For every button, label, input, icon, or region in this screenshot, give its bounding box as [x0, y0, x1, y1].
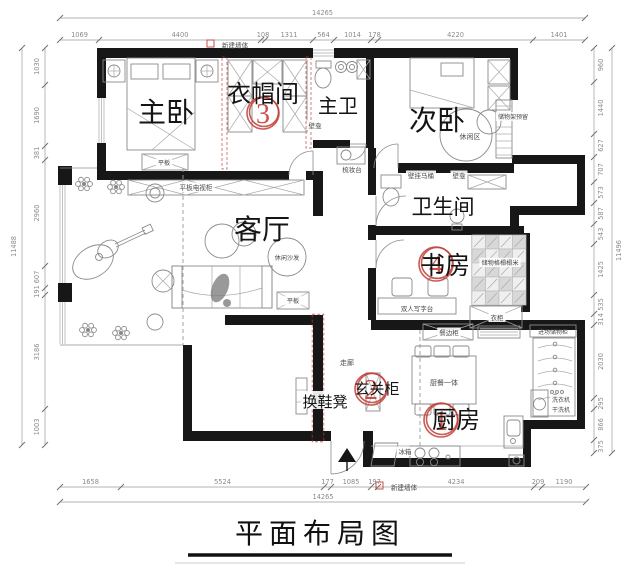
label-tatami: 储物格榻榻米: [481, 259, 518, 267]
plant: [85, 186, 90, 191]
washer-knob: [556, 391, 559, 394]
label-storage-reserved: 储物架预留: [498, 113, 528, 121]
wall-segment: [58, 166, 72, 185]
plant: [108, 185, 113, 190]
floorplan-drawing: 1426510694400108131156410141784220140116…: [0, 0, 640, 571]
toilet: [315, 68, 331, 88]
plant: [79, 186, 84, 191]
room-label-master-bath: 主卫: [318, 95, 358, 118]
plant: [80, 328, 85, 333]
label-leisure-sofa: 休闲沙发: [275, 254, 300, 262]
dim-label: 2960: [33, 205, 41, 222]
dim-label: 1030: [33, 58, 41, 75]
plant: [79, 177, 84, 182]
label-niche: 壁龛: [309, 121, 323, 130]
new-wall-partition: [222, 57, 227, 169]
dim-label: 707: [597, 163, 605, 176]
dim-label: 5524: [214, 478, 231, 486]
entry-arrow: [338, 448, 356, 462]
plant: [85, 177, 90, 182]
dim-label: 4400: [172, 31, 189, 39]
wall-segment: [58, 283, 72, 302]
wall-segment: [334, 48, 518, 58]
door-arc: [374, 144, 398, 168]
wall-segment: [374, 226, 524, 235]
plant: [83, 332, 88, 337]
dim-label: 108: [257, 31, 270, 39]
plant: [83, 323, 88, 328]
dim-label: 295: [597, 397, 605, 410]
room-label-study: 书房: [420, 252, 470, 280]
dim-label: 1440: [597, 100, 605, 117]
plant: [88, 182, 93, 187]
dim-label: 314: [597, 313, 605, 326]
dim-label: 535: [597, 298, 605, 311]
wall-segment: [368, 268, 376, 320]
label-corridor: 走廊: [340, 358, 354, 367]
bed: [410, 58, 474, 108]
wall-segment: [510, 48, 518, 100]
dim-label: 11488: [10, 236, 18, 257]
hanger-rack: [533, 338, 575, 416]
wall-toilet-tank: [381, 175, 401, 188]
dim-label: 564: [317, 31, 330, 39]
legend-new-wall: 新建墙体: [222, 41, 249, 50]
balcony-furniture: [66, 177, 164, 339]
door-arc: [376, 240, 404, 268]
dim-label: 375: [597, 440, 605, 453]
dim-label: 1085: [343, 478, 360, 486]
plant: [117, 189, 122, 194]
dim-label: 381: [33, 147, 41, 160]
pillow: [131, 64, 158, 79]
door-arc: [376, 196, 406, 226]
dim-label: 1658: [82, 478, 99, 486]
dim-label: 3186: [33, 344, 41, 361]
wall-segment: [517, 206, 582, 215]
pillow: [441, 63, 463, 76]
plant: [119, 331, 123, 335]
burner: [415, 448, 425, 458]
label-fridge: 冰箱: [399, 447, 413, 456]
toilet-tank: [316, 61, 331, 68]
room-label-cloak: 衣帽间: [227, 81, 299, 108]
wall-segment: [523, 420, 585, 429]
plant: [114, 185, 118, 189]
dim-label: 178: [368, 31, 381, 39]
washer-knob: [551, 391, 554, 394]
wall-segment: [512, 155, 585, 164]
dim-label: 1311: [281, 31, 298, 39]
wall-segment: [183, 345, 192, 441]
dim-label: 960: [597, 59, 605, 72]
plant: [111, 180, 116, 185]
label-sideboard: 餐边柜: [439, 328, 459, 337]
dim-label: 209: [532, 478, 545, 486]
title-block: 平面布局图: [175, 518, 465, 563]
dim-label: 607: [33, 271, 41, 284]
page-title: 平面布局图: [235, 518, 405, 550]
room-label-bath: 卫生间: [412, 195, 475, 219]
dim-label: 627: [597, 139, 605, 152]
label-entry-storage: 进场储物柜: [538, 328, 568, 336]
wall-segment: [577, 320, 585, 429]
label-flat-cabinet: 平板: [287, 297, 299, 305]
label-niche: 壁龛: [453, 171, 467, 180]
washer-knob: [561, 391, 564, 394]
dim-label: 2030: [597, 353, 605, 370]
room-label-second: 次卧: [409, 105, 465, 137]
plant: [120, 185, 125, 190]
room-label-kitchen: 厨房: [432, 407, 480, 434]
room-label-master: 主卧: [138, 97, 194, 129]
label-flat-cabinet: 平板: [158, 159, 170, 167]
room-label-living: 客厅: [234, 214, 290, 246]
floorplan-page: 1426510694400108131156410141784220140116…: [0, 0, 640, 571]
sink: [350, 65, 355, 70]
guitar-neck: [116, 233, 146, 247]
wall-segment: [97, 171, 289, 180]
label-desk: 双人写字台: [401, 304, 434, 313]
wall-segment: [97, 143, 106, 173]
wall-segment: [368, 225, 376, 240]
dim-label: 587: [597, 207, 605, 220]
round-stool: [150, 188, 160, 198]
round-stool: [147, 314, 163, 330]
guitar-body: [94, 236, 121, 261]
dim-label: 11496: [615, 240, 623, 261]
plant: [117, 180, 122, 185]
plant: [76, 182, 81, 187]
dim-label: 1690: [33, 107, 41, 124]
plant: [92, 328, 97, 333]
sofa-armrest: [262, 266, 272, 308]
plant: [82, 182, 86, 186]
label-entry-cabinet: 玄关柜: [354, 381, 399, 398]
wall-segment: [183, 431, 331, 441]
plant: [116, 335, 121, 340]
label-wardrobe: 衣柜: [491, 313, 505, 322]
dining-chair: [453, 346, 469, 357]
plant: [125, 331, 130, 336]
dim-label: 543: [597, 228, 605, 241]
dining-chair: [415, 346, 431, 357]
dim-label: 1190: [556, 478, 573, 486]
label-vanity: 梳妆台: [342, 165, 362, 174]
legend-new-wall-swatch: [207, 40, 214, 47]
dim-label: 4234: [448, 478, 465, 486]
wall-segment: [225, 315, 317, 325]
label-shoe-bench: 换鞋凳: [302, 394, 347, 411]
dim-label: 177: [321, 478, 334, 486]
dim-label: 191: [33, 285, 41, 298]
dim-label: 573: [597, 186, 605, 199]
sink-basin: [507, 420, 520, 436]
plant: [113, 331, 118, 336]
plant: [86, 328, 90, 332]
dim-label: 1069: [71, 31, 88, 39]
dim-label: 14265: [313, 493, 334, 501]
wall-segment: [313, 315, 323, 441]
dim-label: 1401: [551, 31, 568, 39]
door-arc: [350, 144, 366, 160]
label-leisure-area: 休闲区: [460, 132, 481, 141]
label-dryer: 干洗机: [552, 406, 570, 414]
pillow: [163, 64, 190, 79]
wall-segment: [97, 48, 313, 58]
desk-chair: [392, 278, 412, 296]
vanity-stool: [341, 150, 351, 160]
plant: [111, 189, 116, 194]
sink-faucet: [511, 439, 516, 444]
label-wall-toilet: 壁挂马桶: [408, 171, 434, 180]
legend-new-wall: 新建墙体: [391, 483, 418, 492]
dim-label: 4220: [447, 31, 464, 39]
burner: [429, 448, 439, 458]
guitar-head: [142, 224, 153, 234]
dining-chair: [434, 346, 450, 357]
wall-segment: [313, 171, 323, 216]
wall-segment: [97, 48, 106, 98]
plant: [116, 326, 121, 331]
dim-label: 1003: [33, 419, 41, 436]
guitar-neck: [115, 230, 145, 244]
plant: [122, 335, 127, 340]
dim-label: 866: [597, 418, 605, 431]
label-washer: 洗衣机: [552, 396, 570, 404]
sofa-armrest: [172, 266, 182, 308]
wall-segment: [368, 148, 376, 195]
guitar-body: [66, 238, 119, 287]
person-figure: [223, 299, 231, 307]
plant: [122, 326, 127, 331]
dim-label: 14265: [312, 9, 333, 17]
dim-label: 1425: [597, 261, 605, 278]
sink: [339, 65, 344, 70]
label-tv-cabinet: 平板电视柜: [180, 183, 213, 192]
dim-label: 1014: [344, 31, 361, 39]
plant: [89, 332, 94, 337]
label-dining-table: 厨餐一体: [430, 378, 458, 387]
sink: [347, 62, 358, 73]
sink: [336, 62, 347, 73]
plant: [89, 323, 94, 328]
